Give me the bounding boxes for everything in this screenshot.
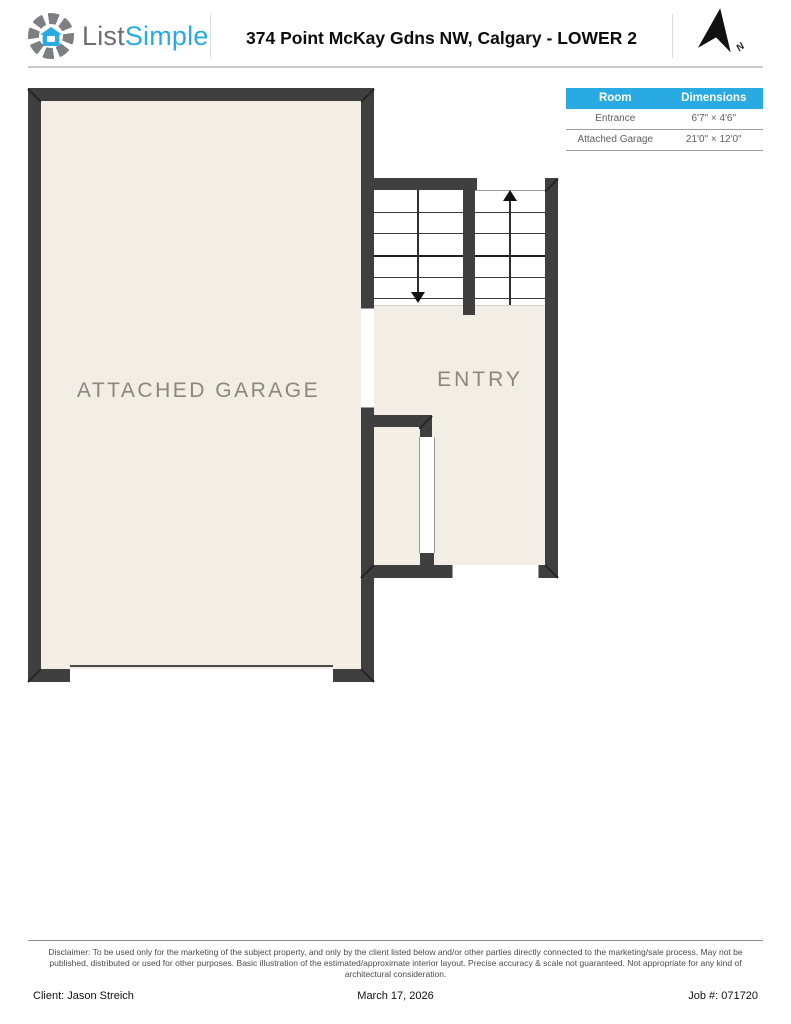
- room-label-attached-garage: ATTACHED GARAGE: [36, 379, 361, 403]
- closet-top-stub: [420, 427, 432, 437]
- header-divider-right: [672, 14, 673, 58]
- entry-bottom-wall: [361, 565, 452, 578]
- column-dimensions: Dimensions: [665, 88, 764, 109]
- garage-doorway-jamb-bottom: [361, 407, 374, 408]
- logo: ListSimple: [28, 13, 209, 59]
- stairs-down-arrow: [411, 292, 425, 303]
- logo-text-simple: Simple: [125, 21, 209, 51]
- stair-floor-edge: [374, 305, 545, 306]
- page: ListSimple 374 Point McKay Gdns NW, Calg…: [0, 0, 791, 1024]
- garage-top-wall: [28, 88, 374, 101]
- room-table: Room Dimensions Entrance 6'7" × 4'6" Att…: [566, 88, 763, 151]
- closet-bottom-stub: [420, 553, 434, 565]
- footer-rule: [28, 940, 763, 941]
- header-rule: [28, 66, 763, 68]
- logo-text-list: List: [82, 21, 125, 51]
- room-dimensions: 21'0" × 12'0": [665, 130, 764, 150]
- stairs-top-wall: [374, 178, 477, 190]
- room-label-entry: ENTRY: [415, 368, 545, 392]
- footer-client: Client: Jason Streich: [33, 990, 134, 1002]
- disclaimer-line: published, distributed or used for other…: [0, 958, 791, 969]
- footer-row: Client: Jason Streich Job #: 071720: [33, 990, 758, 1002]
- entry-door-jamb-left: [452, 565, 453, 578]
- north-arrow: N: [690, 8, 754, 60]
- table-row: Attached Garage 21'0" × 12'0": [566, 130, 763, 151]
- entry-door-jamb-right: [538, 565, 539, 578]
- footer-job: Job #: 071720: [688, 990, 758, 1002]
- room-name: Attached Garage: [566, 130, 665, 150]
- table-row: Entrance 6'7" × 4'6": [566, 109, 763, 130]
- garage-right-wall-upper: [361, 88, 374, 308]
- disclaimer-line: Disclaimer: To be used only for the mark…: [0, 947, 791, 958]
- entry-right-wall: [545, 178, 558, 578]
- disclaimer: Disclaimer: To be used only for the mark…: [0, 947, 791, 980]
- room-name: Entrance: [566, 109, 665, 129]
- closet-door-opening: [419, 437, 435, 553]
- camera-icon: [47, 36, 55, 42]
- room-dimensions: 6'7" × 4'6": [665, 109, 764, 129]
- garage-doorway-jamb-top: [361, 308, 374, 309]
- logo-text: ListSimple: [82, 21, 209, 52]
- garage-door-line: [70, 665, 333, 667]
- garage-right-wall-lower: [361, 408, 374, 682]
- column-room: Room: [566, 88, 665, 109]
- stairs-up-line: [509, 201, 511, 305]
- stairs-down-line: [417, 190, 419, 293]
- room-table-header: Room Dimensions: [566, 88, 763, 109]
- disclaimer-line: architectural consideration.: [0, 969, 791, 980]
- page-title: 374 Point McKay Gdns NW, Calgary - LOWER…: [211, 28, 672, 49]
- entry-floor: [374, 305, 545, 565]
- stairs-up-arrow: [503, 190, 517, 201]
- aperture-icon: [28, 13, 74, 59]
- stairs-middle-wall: [463, 178, 475, 315]
